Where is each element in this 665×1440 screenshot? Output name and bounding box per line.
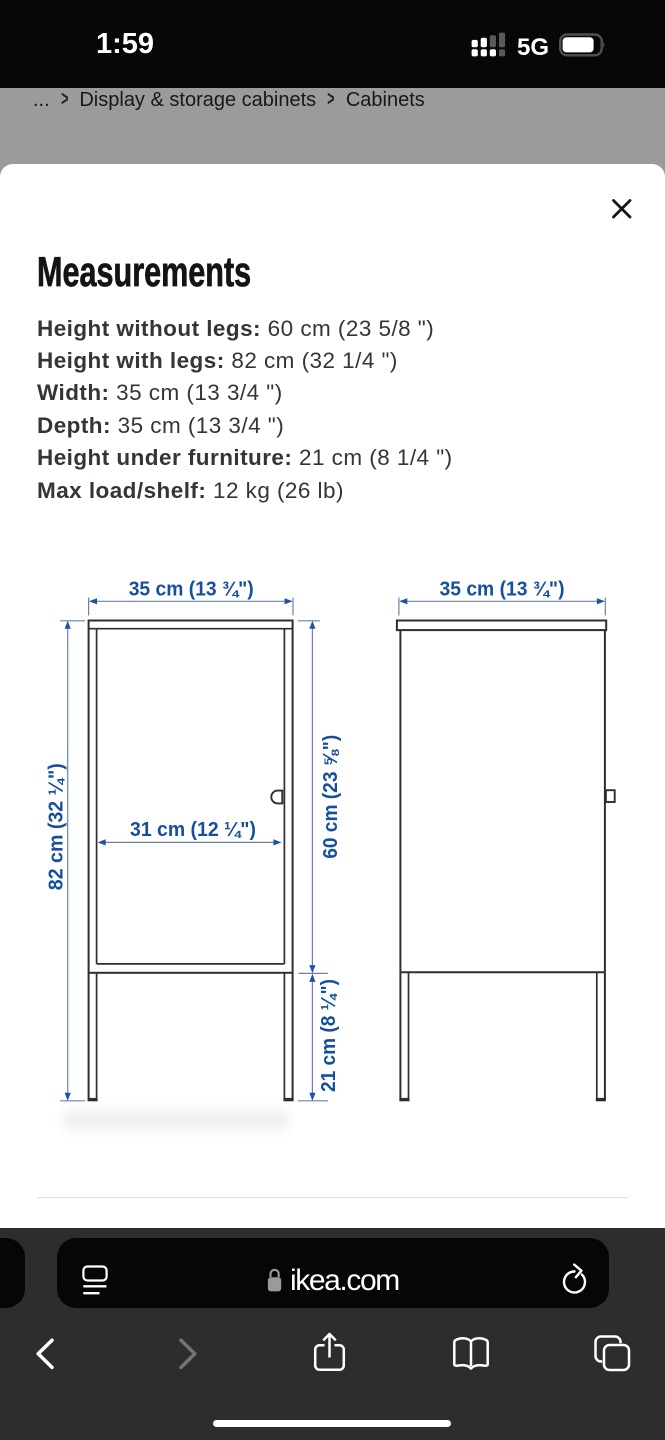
svg-text:35 cm (13 ¾"): 35 cm (13 ¾") (129, 578, 254, 601)
svg-text:35 cm (13 ¾"): 35 cm (13 ¾") (440, 578, 565, 601)
svg-text:5G: 5G (517, 34, 549, 61)
svg-text:60 cm (23 ⅝"): 60 cm (23 ⅝") (319, 735, 342, 859)
svg-text:31 cm (12 ¼"): 31 cm (12 ¼") (130, 818, 256, 841)
svg-text:82 cm (32 ¼"): 82 cm (32 ¼") (45, 763, 68, 890)
svg-text:21 cm (8 ¼"): 21 cm (8 ¼") (317, 979, 340, 1092)
